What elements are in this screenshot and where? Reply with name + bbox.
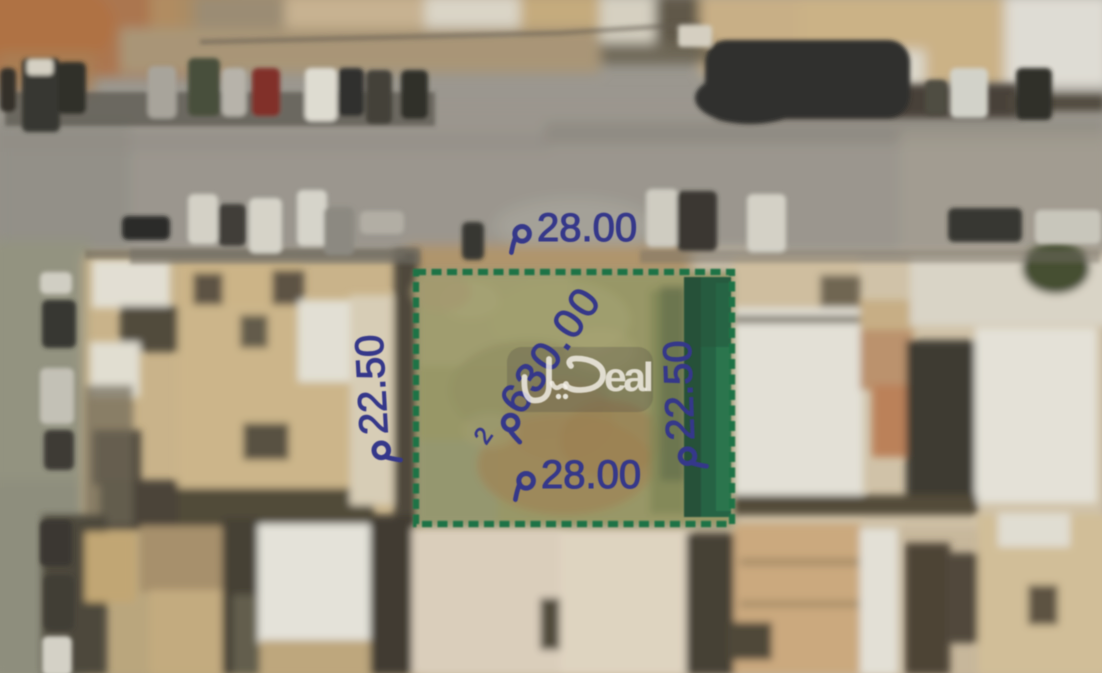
svg-text:28.00: 28.00 <box>541 453 641 497</box>
svg-text:eal: eal <box>604 354 654 400</box>
svg-text:22.50: 22.50 <box>656 340 703 442</box>
svg-text:22.50: 22.50 <box>347 334 396 436</box>
svg-text:28.00: 28.00 <box>537 206 637 250</box>
